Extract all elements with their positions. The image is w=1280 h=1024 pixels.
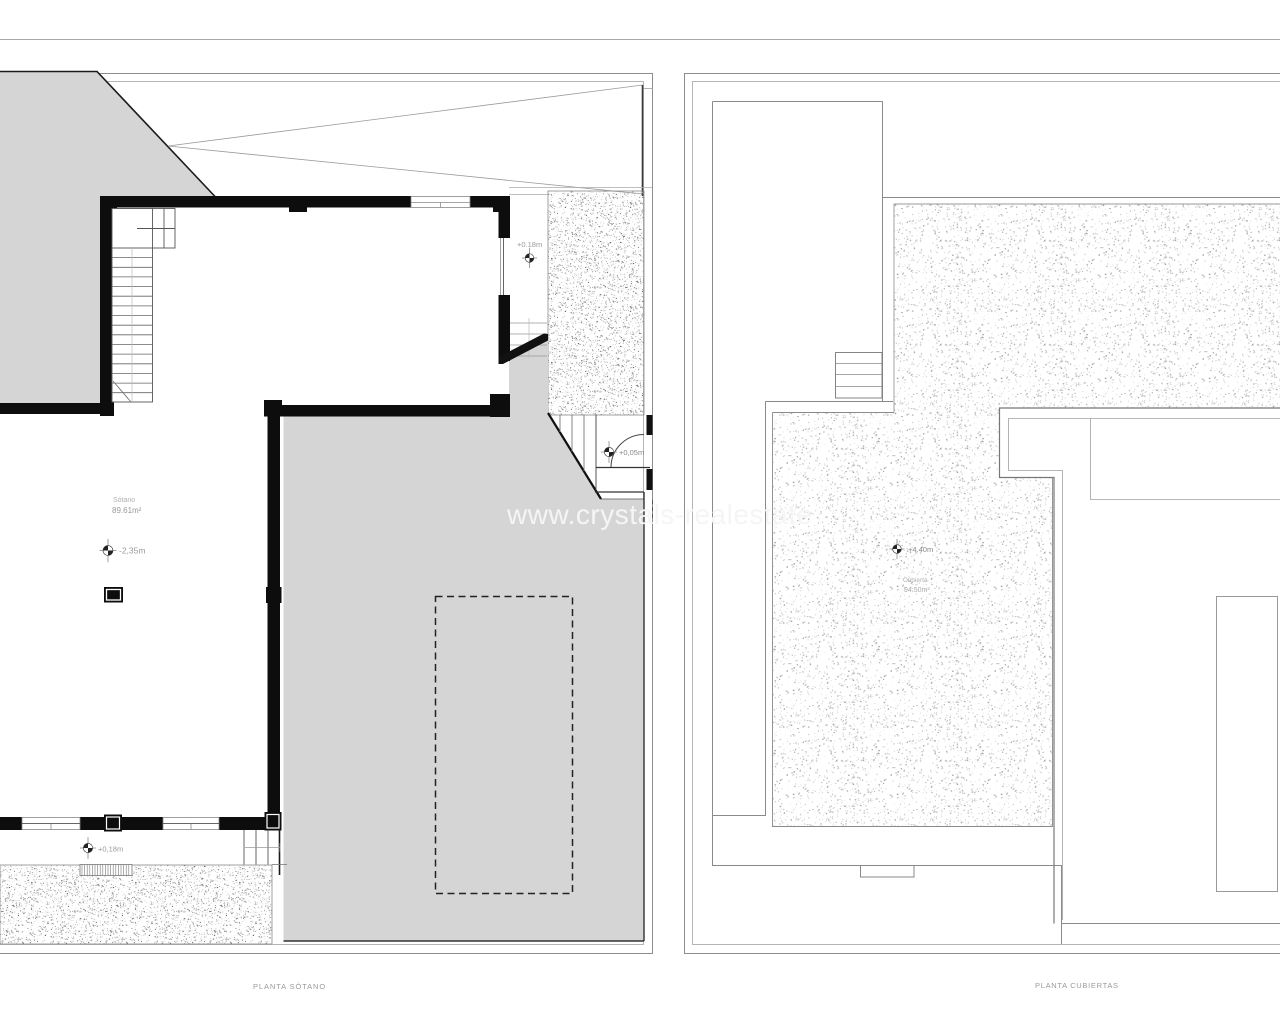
svg-text:+0,18m: +0,18m: [98, 845, 123, 854]
svg-text:www.crystals-realestate: www.crystals-realestate: [506, 499, 813, 530]
svg-text:+0.18m: +0.18m: [517, 240, 542, 249]
svg-text:PLANTA SÓTANO: PLANTA SÓTANO: [253, 982, 326, 991]
svg-text:89.61m²: 89.61m²: [112, 506, 142, 515]
svg-text:Cubierta: Cubierta: [903, 577, 928, 584]
svg-text:+4.40m: +4.40m: [908, 545, 933, 554]
svg-text:+0,05m: +0,05m: [619, 448, 644, 457]
svg-text:94.50m²: 94.50m²: [904, 587, 930, 594]
svg-text:-2,35m: -2,35m: [119, 546, 145, 556]
svg-text:Sótano: Sótano: [113, 497, 135, 504]
svg-text:PLANTA CUBIERTAS: PLANTA CUBIERTAS: [1035, 981, 1119, 990]
